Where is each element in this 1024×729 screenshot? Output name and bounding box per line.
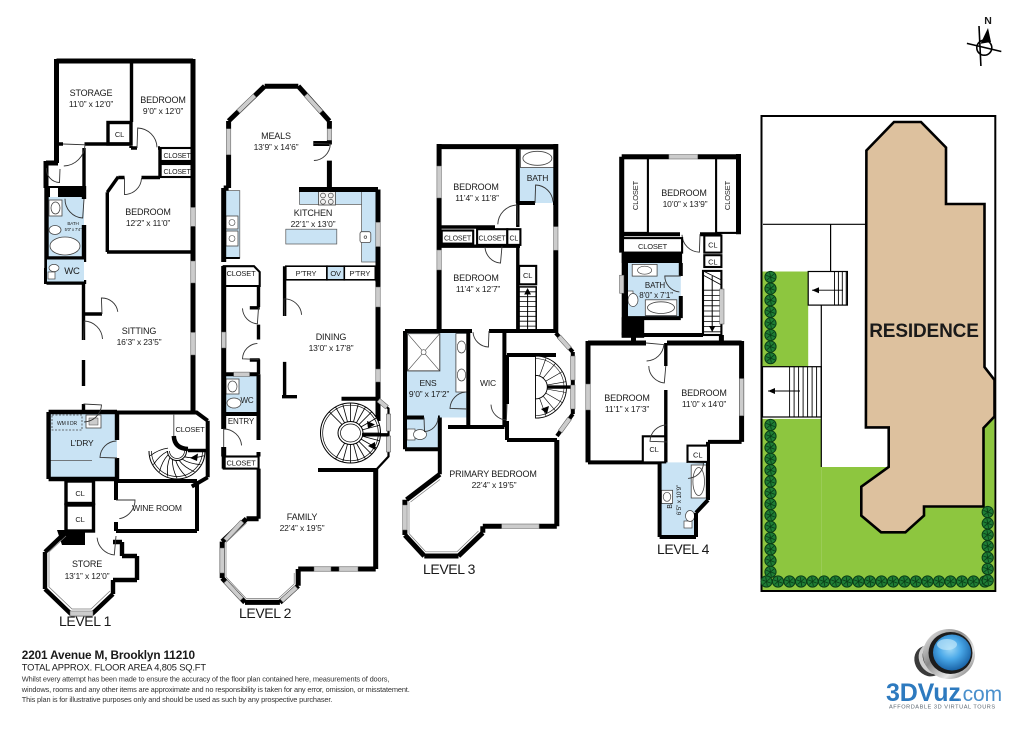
svg-text:RESIDENCE: RESIDENCE [869, 321, 979, 342]
svg-text:LEVEL 4: LEVEL 4 [657, 541, 710, 557]
svg-text:AFFORDABLE 3D VIRTUAL TOURS: AFFORDABLE 3D VIRTUAL TOURS [889, 705, 996, 711]
svg-text:CLOSET: CLOSET [175, 425, 205, 434]
svg-text:Whilst every attempt has been: Whilst every attempt has been made to en… [22, 675, 390, 684]
svg-text:SITTING: SITTING [122, 326, 157, 336]
svg-text:12’2” x 11’0”: 12’2” x 11’0” [126, 218, 171, 228]
svg-text:CL: CL [693, 451, 702, 460]
svg-text:WIC: WIC [480, 378, 496, 388]
svg-text:LEVEL 3: LEVEL 3 [423, 561, 476, 577]
svg-text:WINE ROOM: WINE ROOM [132, 503, 182, 513]
svg-text:CLOSET: CLOSET [638, 242, 668, 251]
svg-text:CL: CL [708, 258, 717, 267]
svg-text:STORE: STORE [72, 559, 102, 569]
svg-text:5’0” x 7’4”: 5’0” x 7’4” [65, 227, 82, 232]
svg-text:BATH: BATH [527, 173, 548, 183]
svg-text:22’4” x 19’5”: 22’4” x 19’5” [280, 523, 325, 533]
svg-text:TOTAL APPROX. FLOOR AREA 4,805: TOTAL APPROX. FLOOR AREA 4,805 SQ.FT [22, 663, 207, 673]
svg-text:CL: CL [115, 130, 124, 139]
svg-text:11’4” x 12’7”: 11’4” x 12’7” [456, 284, 501, 294]
svg-text:KITCHEN: KITCHEN [294, 208, 332, 218]
svg-text:P’TRY: P’TRY [349, 269, 370, 278]
svg-text:CL: CL [649, 445, 658, 454]
svg-text:L’DRY: L’DRY [70, 438, 94, 448]
svg-text:CLOSET: CLOSET [723, 180, 732, 210]
svg-text:PRIMARY BEDROOM: PRIMARY BEDROOM [449, 469, 536, 479]
svg-text:BEDROOM: BEDROOM [453, 273, 498, 283]
svg-text:CLOSET: CLOSET [163, 169, 191, 176]
svg-text:CL: CL [509, 236, 518, 243]
svg-text:BEDROOM: BEDROOM [681, 388, 726, 398]
svg-text:WM ‖ DR: WM ‖ DR [57, 421, 77, 427]
svg-text:3DVuz: 3DVuz [886, 679, 961, 707]
svg-text:BATH: BATH [645, 281, 666, 290]
svg-text:MEALS: MEALS [261, 131, 291, 141]
svg-text:10’0” x 13’9”: 10’0” x 13’9” [663, 199, 708, 209]
svg-text:11’4” x 11’8”: 11’4” x 11’8” [455, 193, 499, 203]
svg-text:P’TRY: P’TRY [296, 269, 317, 278]
svg-text:WC: WC [64, 266, 80, 277]
svg-text:22’4” x 19’5”: 22’4” x 19’5” [472, 480, 517, 490]
svg-text:CLOSET: CLOSET [163, 153, 191, 160]
svg-text:BEDROOM: BEDROOM [125, 207, 170, 217]
svg-text:2201 Avenue M, Brooklyn 11210: 2201 Avenue M, Brooklyn 11210 [22, 648, 196, 662]
svg-text:.com: .com [957, 683, 1002, 706]
svg-text:CLOSET: CLOSET [444, 236, 472, 243]
svg-text:13’0” x 17’8”: 13’0” x 17’8” [309, 343, 354, 353]
svg-text:BEDROOM: BEDROOM [453, 182, 498, 192]
svg-text:CLOSET: CLOSET [226, 459, 256, 468]
svg-text:CLOSET: CLOSET [478, 236, 506, 243]
svg-text:OV: OV [330, 269, 341, 278]
svg-text:BEDROOM: BEDROOM [661, 188, 706, 198]
svg-text:LEVEL 2: LEVEL 2 [239, 605, 292, 621]
svg-text:CL: CL [75, 515, 84, 524]
svg-text:9’0” x 17’2”: 9’0” x 17’2” [409, 389, 450, 399]
svg-text:BATH: BATH [67, 221, 78, 226]
svg-text:CLOSET: CLOSET [226, 269, 256, 278]
svg-text:FAMILY: FAMILY [287, 512, 318, 522]
svg-text:13’9” x 14’6”: 13’9” x 14’6” [254, 142, 299, 152]
svg-text:This plan is for illustrative: This plan is for illustrative purposes o… [22, 695, 332, 704]
svg-text:11’0” x 14’0”: 11’0” x 14’0” [682, 399, 727, 409]
svg-text:CL: CL [75, 489, 84, 498]
svg-text:CL: CL [708, 241, 717, 250]
svg-text:11’0” x 12’0”: 11’0” x 12’0” [69, 99, 114, 109]
svg-text:CL: CL [523, 271, 532, 280]
svg-text:6’5” x 10’9”: 6’5” x 10’9” [676, 485, 683, 515]
svg-text:11’1” x 17’3”: 11’1” x 17’3” [605, 404, 650, 414]
svg-text:22’1” x 13’0”: 22’1” x 13’0” [291, 219, 336, 229]
svg-text:8’0” x 7’1”: 8’0” x 7’1” [639, 291, 673, 300]
svg-text:16’3” x 23’5”: 16’3” x 23’5” [117, 337, 162, 347]
svg-text:N: N [984, 15, 991, 27]
svg-text:ENS: ENS [419, 378, 437, 388]
svg-text:ENTRY: ENTRY [228, 417, 255, 426]
svg-text:CLOSET: CLOSET [631, 180, 640, 210]
svg-text:LEVEL 1: LEVEL 1 [59, 613, 112, 629]
svg-text:DINING: DINING [316, 332, 347, 342]
svg-text:BEDROOM: BEDROOM [604, 393, 649, 403]
svg-text:BEDROOM: BEDROOM [140, 95, 185, 105]
svg-text:WC: WC [240, 396, 253, 405]
svg-text:windows, rooms and any other i: windows, rooms and any other items are a… [21, 685, 410, 694]
svg-text:13’1” x 12’0”: 13’1” x 12’0” [65, 571, 110, 581]
svg-text:9’0” x 12’0”: 9’0” x 12’0” [143, 106, 184, 116]
svg-text:STORAGE: STORAGE [70, 88, 113, 98]
